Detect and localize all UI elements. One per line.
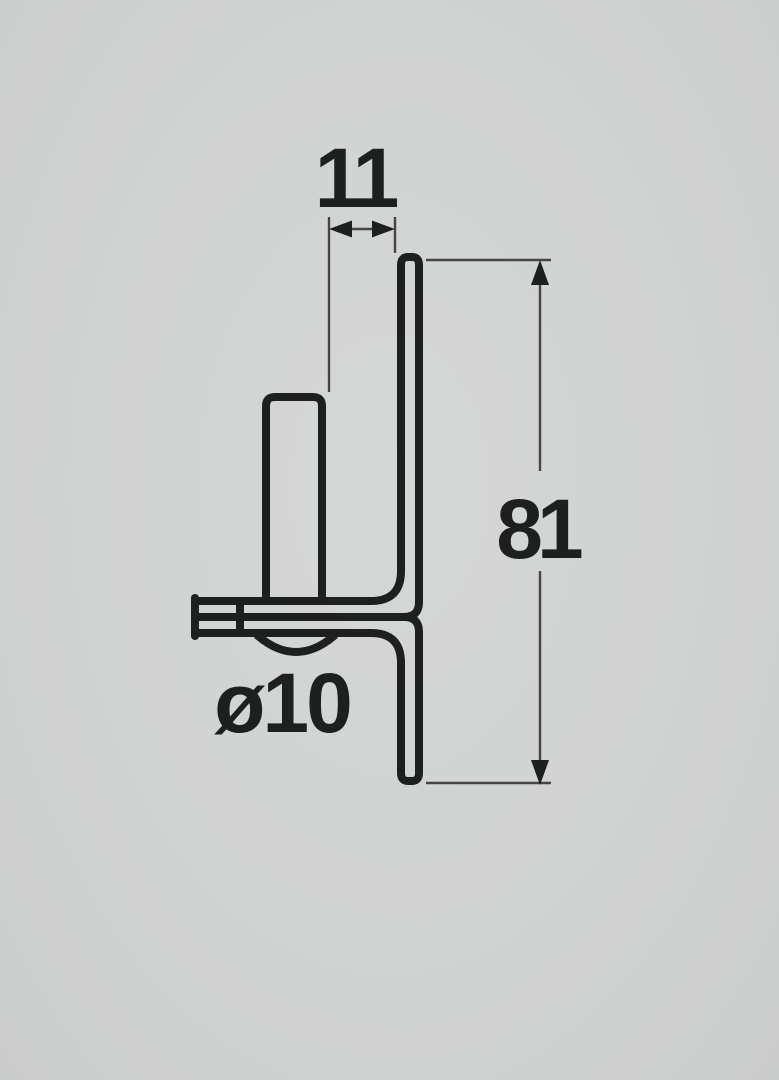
dim-81-arrow-up-icon (531, 260, 549, 285)
bracket-upper-outline (194, 257, 419, 617)
dim-label-plate-height: 81 (496, 482, 582, 576)
pin-end-arc (258, 636, 334, 652)
dim-label-pin-offset: 11 (315, 131, 398, 225)
hinge-bracket-drawing: 11 81 ø10 (0, 0, 779, 1080)
technical-drawing-page: 11 81 ø10 (0, 0, 779, 1080)
dim-label-pin-diameter: ø10 (214, 656, 350, 750)
dim-81-arrow-down-icon (531, 760, 549, 785)
hinge-pin-outline (266, 397, 322, 604)
